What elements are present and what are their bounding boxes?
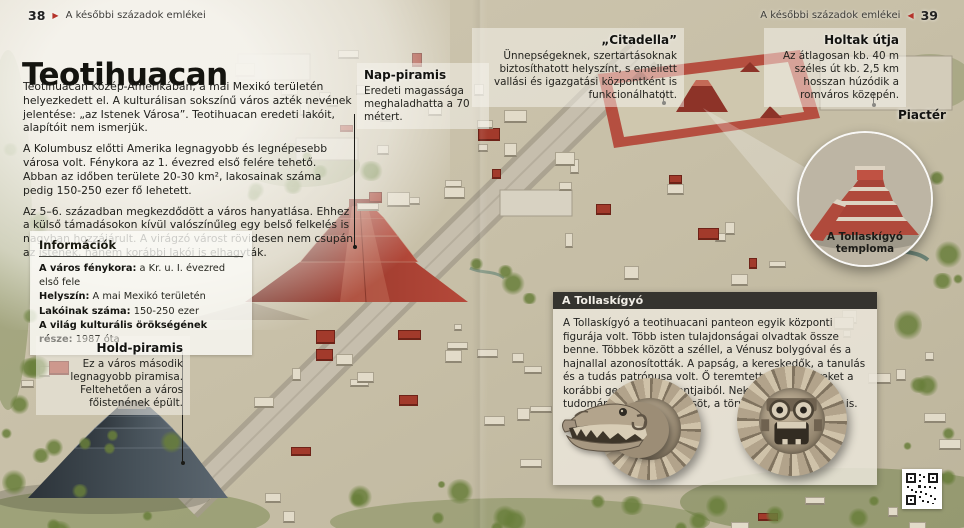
callout-title: Holtak útja [771,33,899,48]
qr-code [902,469,942,509]
page-marker-right-icon: ▶ [52,12,58,20]
label-marketplace: Piactér [898,108,946,122]
info-label: Helyszín: [39,291,89,302]
info-row: A város fénykora: a Kr. u. I. évezred el… [39,262,243,290]
qr-pattern [905,472,939,506]
callout-title: Nap-piramis [364,68,482,83]
deity-face-medallion [737,366,847,476]
info-box-title: Információk [39,238,243,257]
article-paragraph: A Kolumbusz előtti Amerika legnagyobb és… [23,142,354,197]
feathered-serpent-panel: A Tollaskígyó A Tollaskígyó a teotihuaca… [553,292,877,485]
running-title-right: A későbbi századok emlékei [760,10,900,21]
page-header-right: A későbbi századok emlékei ◀ 39 [760,8,938,23]
callout-avenue-of-the-dead: Holtak útja Az átlagosan kb. 40 m széles… [764,28,906,107]
callout-title: „Citadella” [479,33,677,48]
magnifier-inset-temple: A Tollaskígyó temploma [797,131,933,267]
info-value: A mai Mexikó területén [93,291,206,302]
info-value: 150-250 ezer [134,306,199,317]
page-header-left: 38 ▶ A későbbi századok emlékei [28,8,206,23]
running-title-left: A későbbi századok emlékei [66,10,206,21]
callout-title: Hold-piramis [43,341,183,356]
book-spread: 38 ▶ A későbbi századok emlékei A később… [0,0,964,528]
article-paragraph: Teotihuacan Közép-Amerikában, a mai Mexi… [23,80,354,135]
callout-text: Az átlagosan kb. 40 m széles út kb. 2,5 … [771,50,899,102]
deity-face-carving [752,381,831,460]
page-number-right: 39 [921,8,938,23]
callout-text: Eredeti magassága meghaladhatta a 70 mét… [364,85,482,124]
callout-moon-pyramid: Hold-piramis Ez a város második legnagyo… [36,336,190,415]
callout-sun-pyramid: Nap-piramis Eredeti magassága meghaladha… [357,63,489,129]
info-row: Lakóinak száma: 150-250 ezer [39,305,243,319]
page-marker-left-icon: ◀ [907,12,913,20]
info-label: Lakóinak száma: [39,306,131,317]
panel-title: A Tollaskígyó [553,292,877,309]
inset-caption: A Tollaskígyó temploma [799,232,931,256]
callout-citadel: „Citadella” Ünnepségeknek, szertartásokn… [472,28,684,107]
feathered-serpent-head-carving [557,392,671,470]
callout-text: Ez a város második legnagyobb piramisa. … [43,358,183,410]
callout-text: Ünnepségeknek, szertartásoknak biztosíth… [479,50,677,102]
info-label: A város fénykora: [39,263,136,274]
leader-line-sun [354,114,355,246]
page-number-left: 38 [28,8,45,23]
info-row: Helyszín: A mai Mexikó területén [39,290,243,304]
